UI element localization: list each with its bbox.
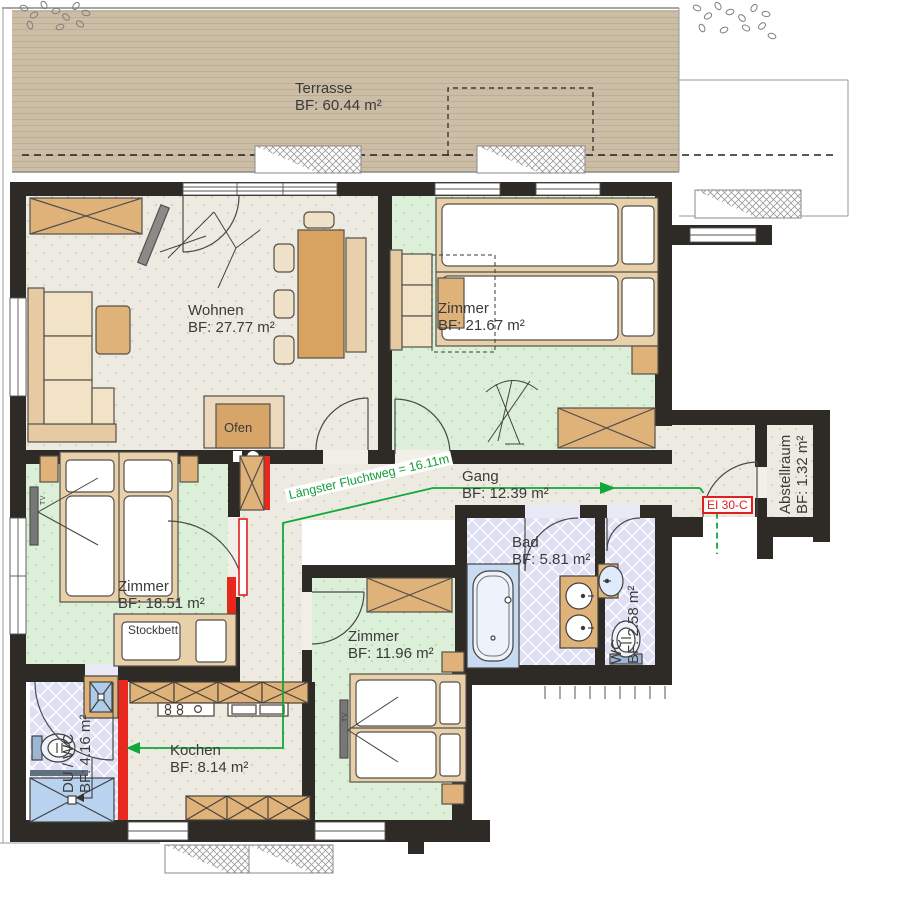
kochen-label: Kochen BF: 8.14 m² [170,742,248,777]
terrasse-label: Terrasse BF: 60.44 m² [295,80,382,115]
gang-label: Gang BF: 12.39 m² [462,468,549,503]
kitchen-counter [130,682,308,703]
zimmer-w-label: Zimmer BF: 18.51 m² [118,578,205,613]
coffee-table [96,306,130,354]
nightstand [442,652,464,672]
room-name: Terrasse [295,80,382,97]
wohnen-label: Wohnen BF: 27.77 m² [188,302,275,337]
floor-plan: Terrasse BF: 60.44 m² Wohnen BF: 27.77 m… [0,0,920,900]
oven-label: Ofen [224,420,252,435]
bunk-bed [114,614,236,666]
nightstand [442,784,464,804]
double-bed [350,674,466,782]
zimmer-ne-label: Zimmer BF: 21.67 m² [438,300,525,335]
room-area: BF: 60.44 m² [295,97,382,114]
kitchen-counter [186,796,310,820]
nightstand [40,456,58,482]
hall-wardrobe [240,456,264,510]
tv-label: TV [40,495,48,505]
cooktop-icon [158,703,214,716]
abstellraum-label: Abstellraum BF: 1.32 m² [777,435,812,514]
corridor-leg-floor [240,520,302,682]
fire-door-leaf [239,519,247,595]
bathtub [467,564,519,668]
sofa-small [390,250,432,350]
ground-ticks [545,686,665,699]
bunk-bed-label: Stockbett [128,623,178,637]
terrace-door [183,183,337,195]
wardrobe [558,408,655,448]
tv-panel-icon [340,700,348,758]
wardrobe [367,578,452,612]
fire-door-label: EI 30-C [702,496,753,514]
bad-label: Bad BF: 5.81 m² [512,534,590,569]
wc-label: WC BF: 2.58 m² [608,586,643,664]
tv-label: TV [342,712,350,722]
du-wc-label: DU / WC BF: 4.16 m² [60,715,95,793]
nightstand [180,456,198,482]
zimmer-s-label: Zimmer BF: 11.96 m² [348,628,434,663]
double-washbasin [560,576,598,648]
wardrobe [30,198,142,234]
nightstand [632,346,658,374]
kitchen-sink-icon [228,703,288,716]
tv-panel-icon [30,487,38,545]
